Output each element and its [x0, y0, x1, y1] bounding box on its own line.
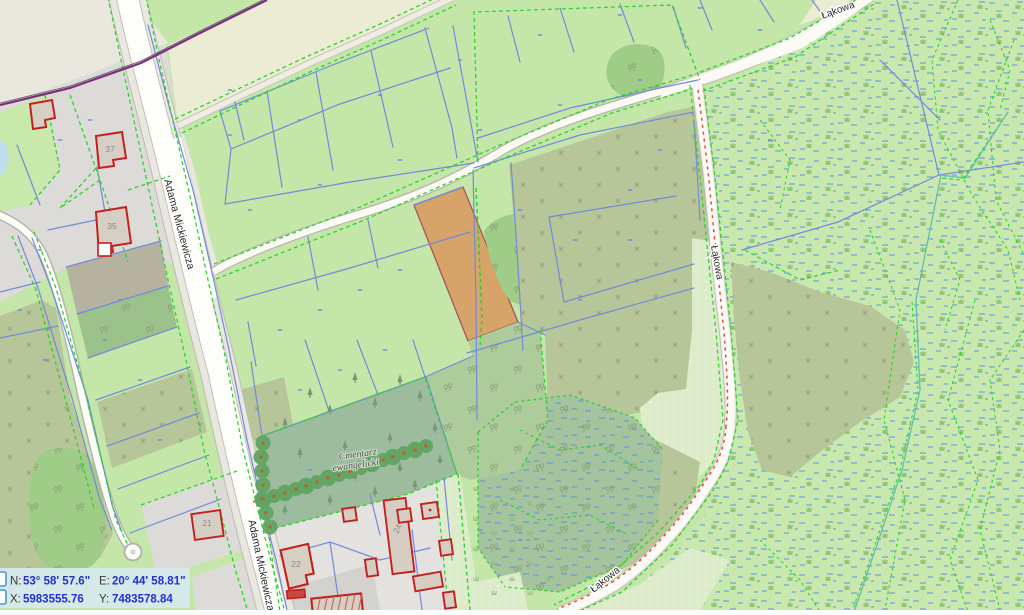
svg-text:22: 22: [291, 559, 301, 569]
svg-text:X:: X:: [10, 594, 21, 606]
svg-text:N:: N:: [10, 576, 22, 588]
svg-text:Y:: Y:: [99, 594, 109, 606]
svg-text:53° 58' 57.6": 53° 58' 57.6": [23, 576, 90, 588]
svg-text:5983555.76: 5983555.76: [23, 594, 84, 606]
svg-text:37: 37: [105, 144, 115, 154]
svg-text:21: 21: [202, 518, 212, 528]
svg-text:E:: E:: [99, 576, 110, 588]
svg-text:35: 35: [107, 221, 117, 231]
svg-text:20° 44' 58.81": 20° 44' 58.81": [112, 576, 186, 588]
svg-text:7483578.84: 7483578.84: [112, 594, 173, 606]
